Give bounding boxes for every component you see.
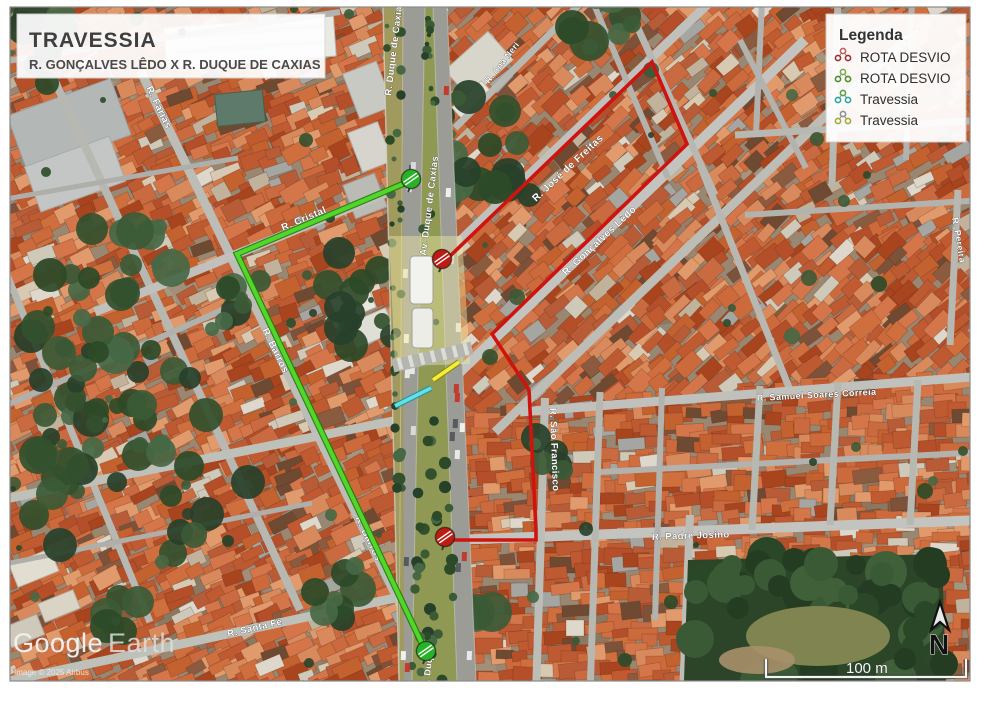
svg-text:Google: Google: [13, 628, 103, 658]
svg-text:R. GONÇALVES LÊDO X R. DUQUE D: R. GONÇALVES LÊDO X R. DUQUE DE CAXIAS: [29, 57, 321, 72]
svg-text:Earth: Earth: [108, 628, 175, 658]
svg-text:ROTA DESVIO: ROTA DESVIO: [860, 50, 951, 65]
svg-text:Legenda: Legenda: [839, 27, 903, 44]
svg-text:N: N: [929, 629, 949, 660]
svg-text:Travessia: Travessia: [860, 92, 919, 107]
svg-text:Travessia: Travessia: [860, 113, 919, 128]
svg-text:Image © 2025 Airbus: Image © 2025 Airbus: [14, 668, 89, 677]
svg-text:TRAVESSIA: TRAVESSIA: [29, 29, 157, 52]
svg-text:100 m: 100 m: [846, 660, 888, 677]
svg-text:ROTA DESVIO: ROTA DESVIO: [860, 71, 951, 86]
